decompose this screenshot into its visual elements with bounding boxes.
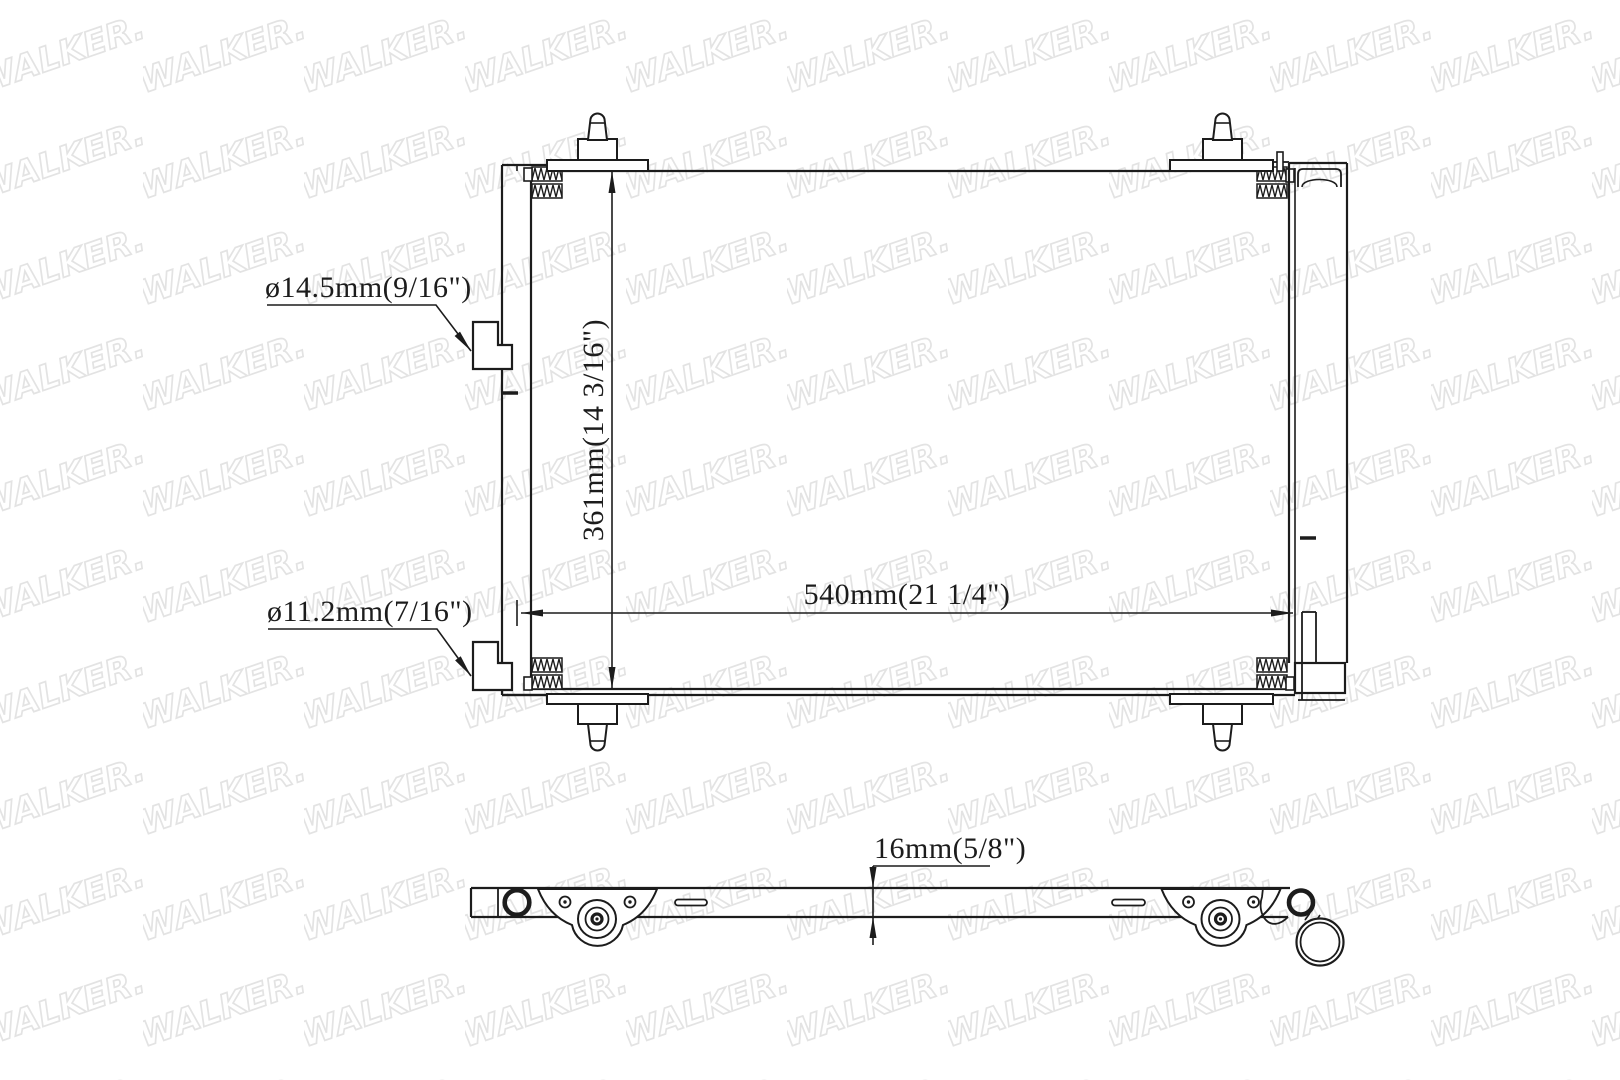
hanging-cap-ring-outer	[1297, 919, 1344, 966]
right-slot	[1112, 900, 1145, 906]
top-right-tab	[1277, 152, 1283, 171]
lower-port-dimension-label: ø11.2mm(7/16")	[267, 595, 473, 628]
left-slot	[675, 900, 707, 906]
technical-drawing-canvas: WALKER.	[0, 0, 1620, 1080]
core-depth-dimension-label: 16mm(5/8")	[874, 832, 1026, 865]
upper-port-dimension-label: ø14.5mm(9/16")	[265, 271, 472, 304]
core-height-dimension-label: 361mm(14 3/16")	[577, 319, 610, 541]
core-width-dimension-label: 540mm(21 1/4")	[804, 578, 1011, 611]
